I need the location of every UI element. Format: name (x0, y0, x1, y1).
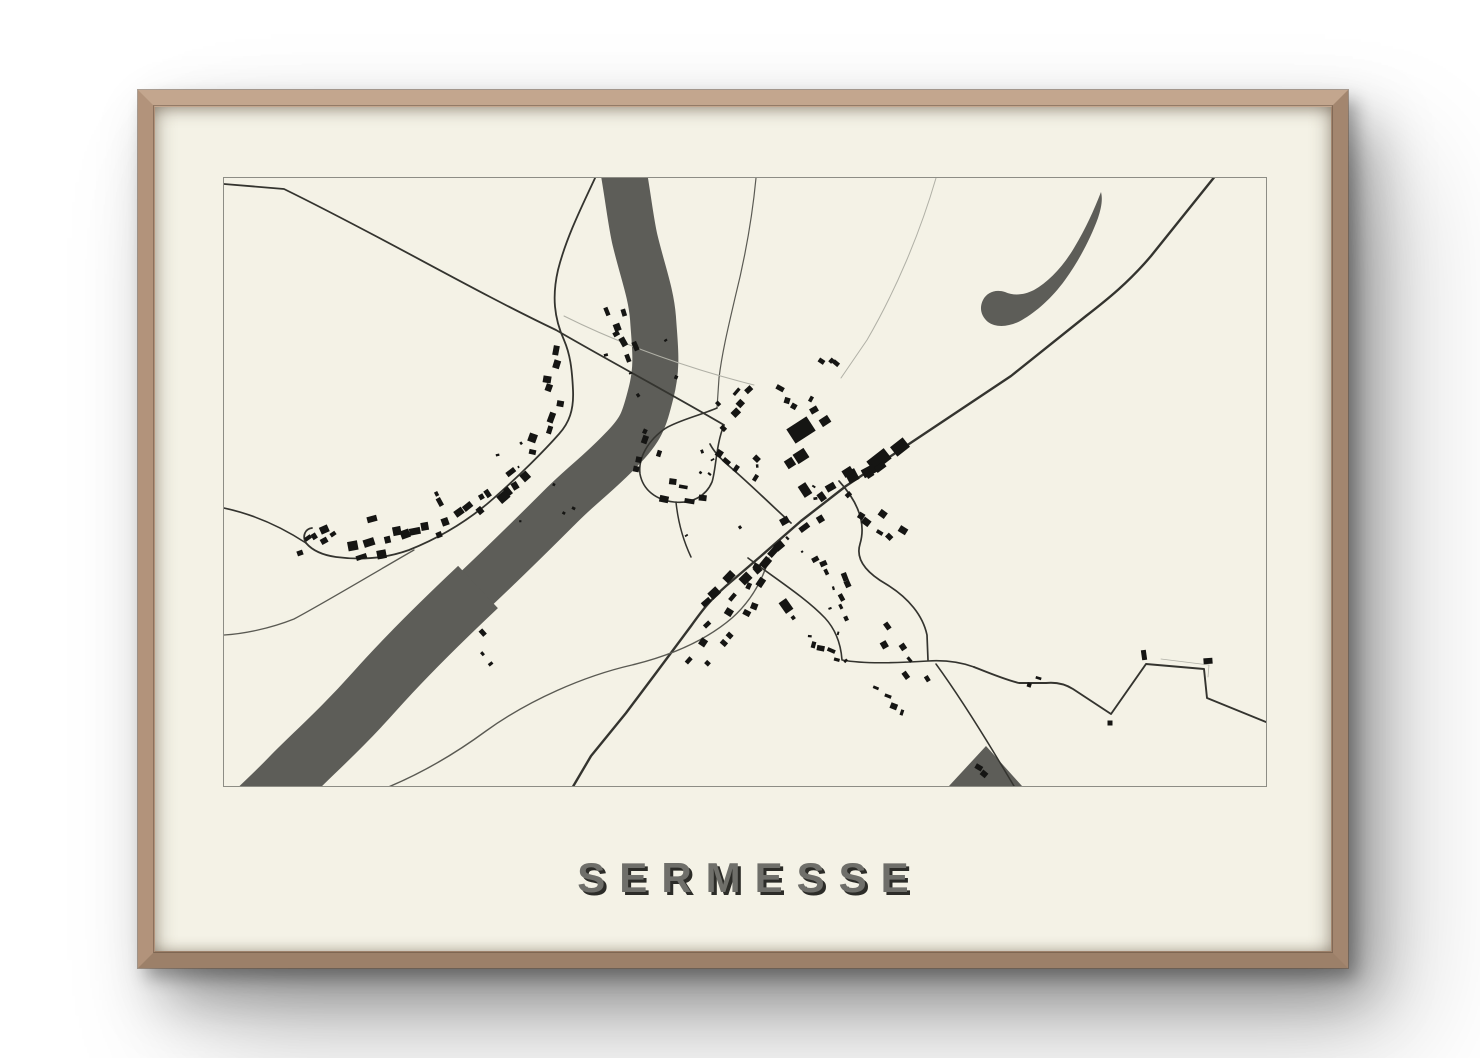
wall-background: SERMESSE (0, 0, 1480, 1058)
map-title: SERMESSE (155, 857, 1331, 899)
map-poster: SERMESSE (155, 107, 1331, 951)
map-graphic (224, 178, 1266, 786)
picture-frame: SERMESSE (138, 90, 1348, 968)
map-panel (223, 177, 1267, 787)
